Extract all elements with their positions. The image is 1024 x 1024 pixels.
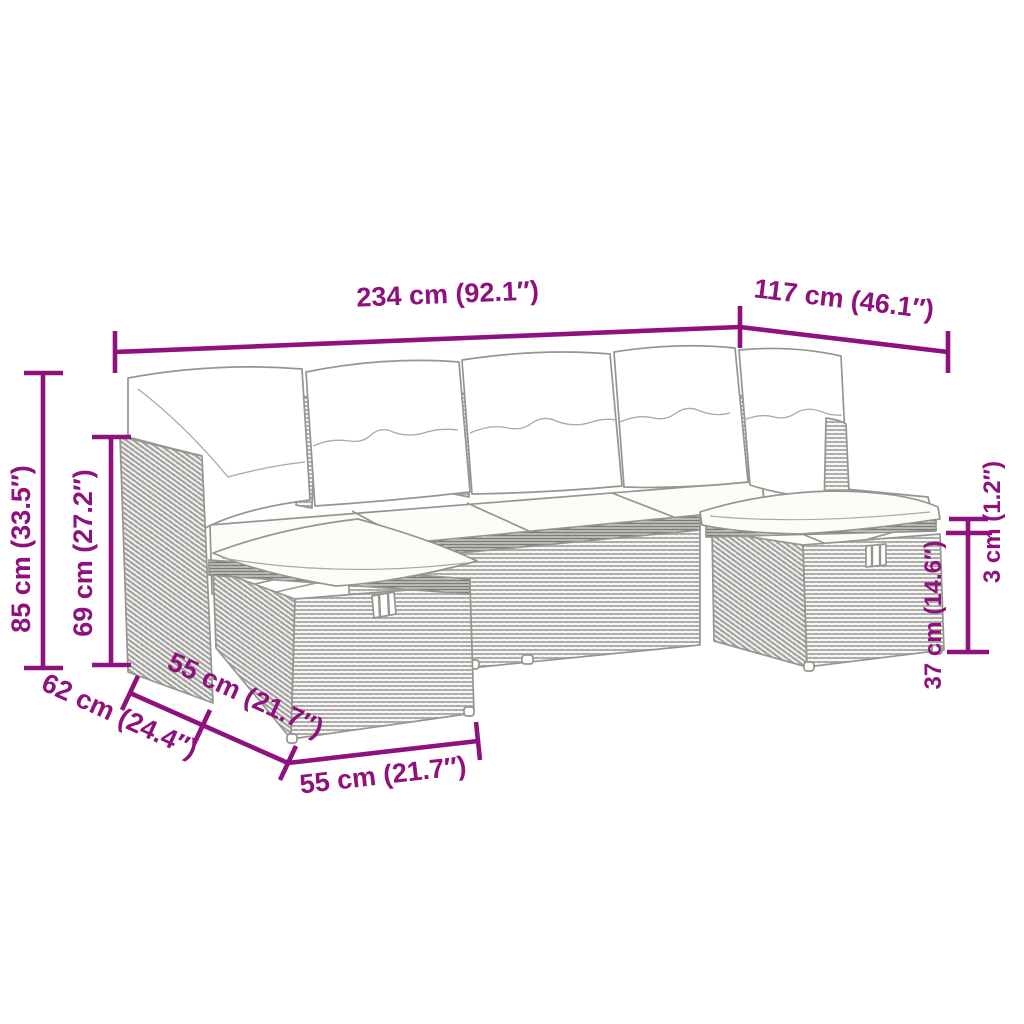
base-foot bbox=[522, 655, 533, 664]
dim-label-total-height: 85 cm (33.5″) bbox=[6, 465, 36, 633]
left-ottoman-foot bbox=[287, 734, 297, 743]
right-ottoman-foot bbox=[804, 662, 814, 671]
dim-label-total-depth: 117 cm (46.1″) bbox=[752, 273, 935, 325]
left-ottoman-foot bbox=[464, 707, 474, 716]
dim-label-stool-height: 37 cm (14.6″) bbox=[920, 541, 947, 690]
dim-label-total-width: 234 cm (92.1″) bbox=[356, 275, 540, 312]
dim-label-cushion-thickness: 3 cm (1.2″) bbox=[979, 461, 1006, 583]
left-ottoman-handle bbox=[372, 592, 396, 618]
right-ottoman-handle bbox=[866, 544, 886, 567]
diagram-canvas: 234 cm (92.1″) 117 cm (46.1″) 85 cm (33.… bbox=[0, 0, 1024, 1024]
dim-label-back-height: 69 cm (27.2″) bbox=[68, 469, 98, 637]
right-ottoman-left-face bbox=[712, 531, 807, 667]
right-ottoman bbox=[700, 491, 944, 671]
product-dimension-diagram: 234 cm (92.1″) 117 cm (46.1″) 85 cm (33.… bbox=[0, 0, 1024, 1024]
